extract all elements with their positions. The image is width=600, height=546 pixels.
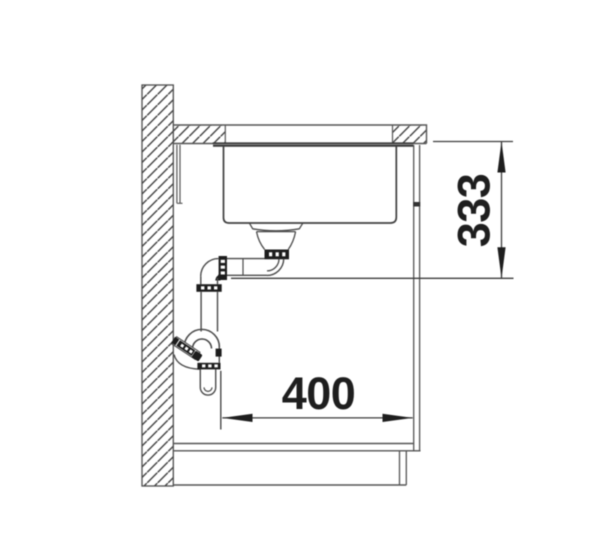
svg-text:333: 333 (449, 174, 500, 248)
svg-text:400: 400 (282, 368, 356, 419)
